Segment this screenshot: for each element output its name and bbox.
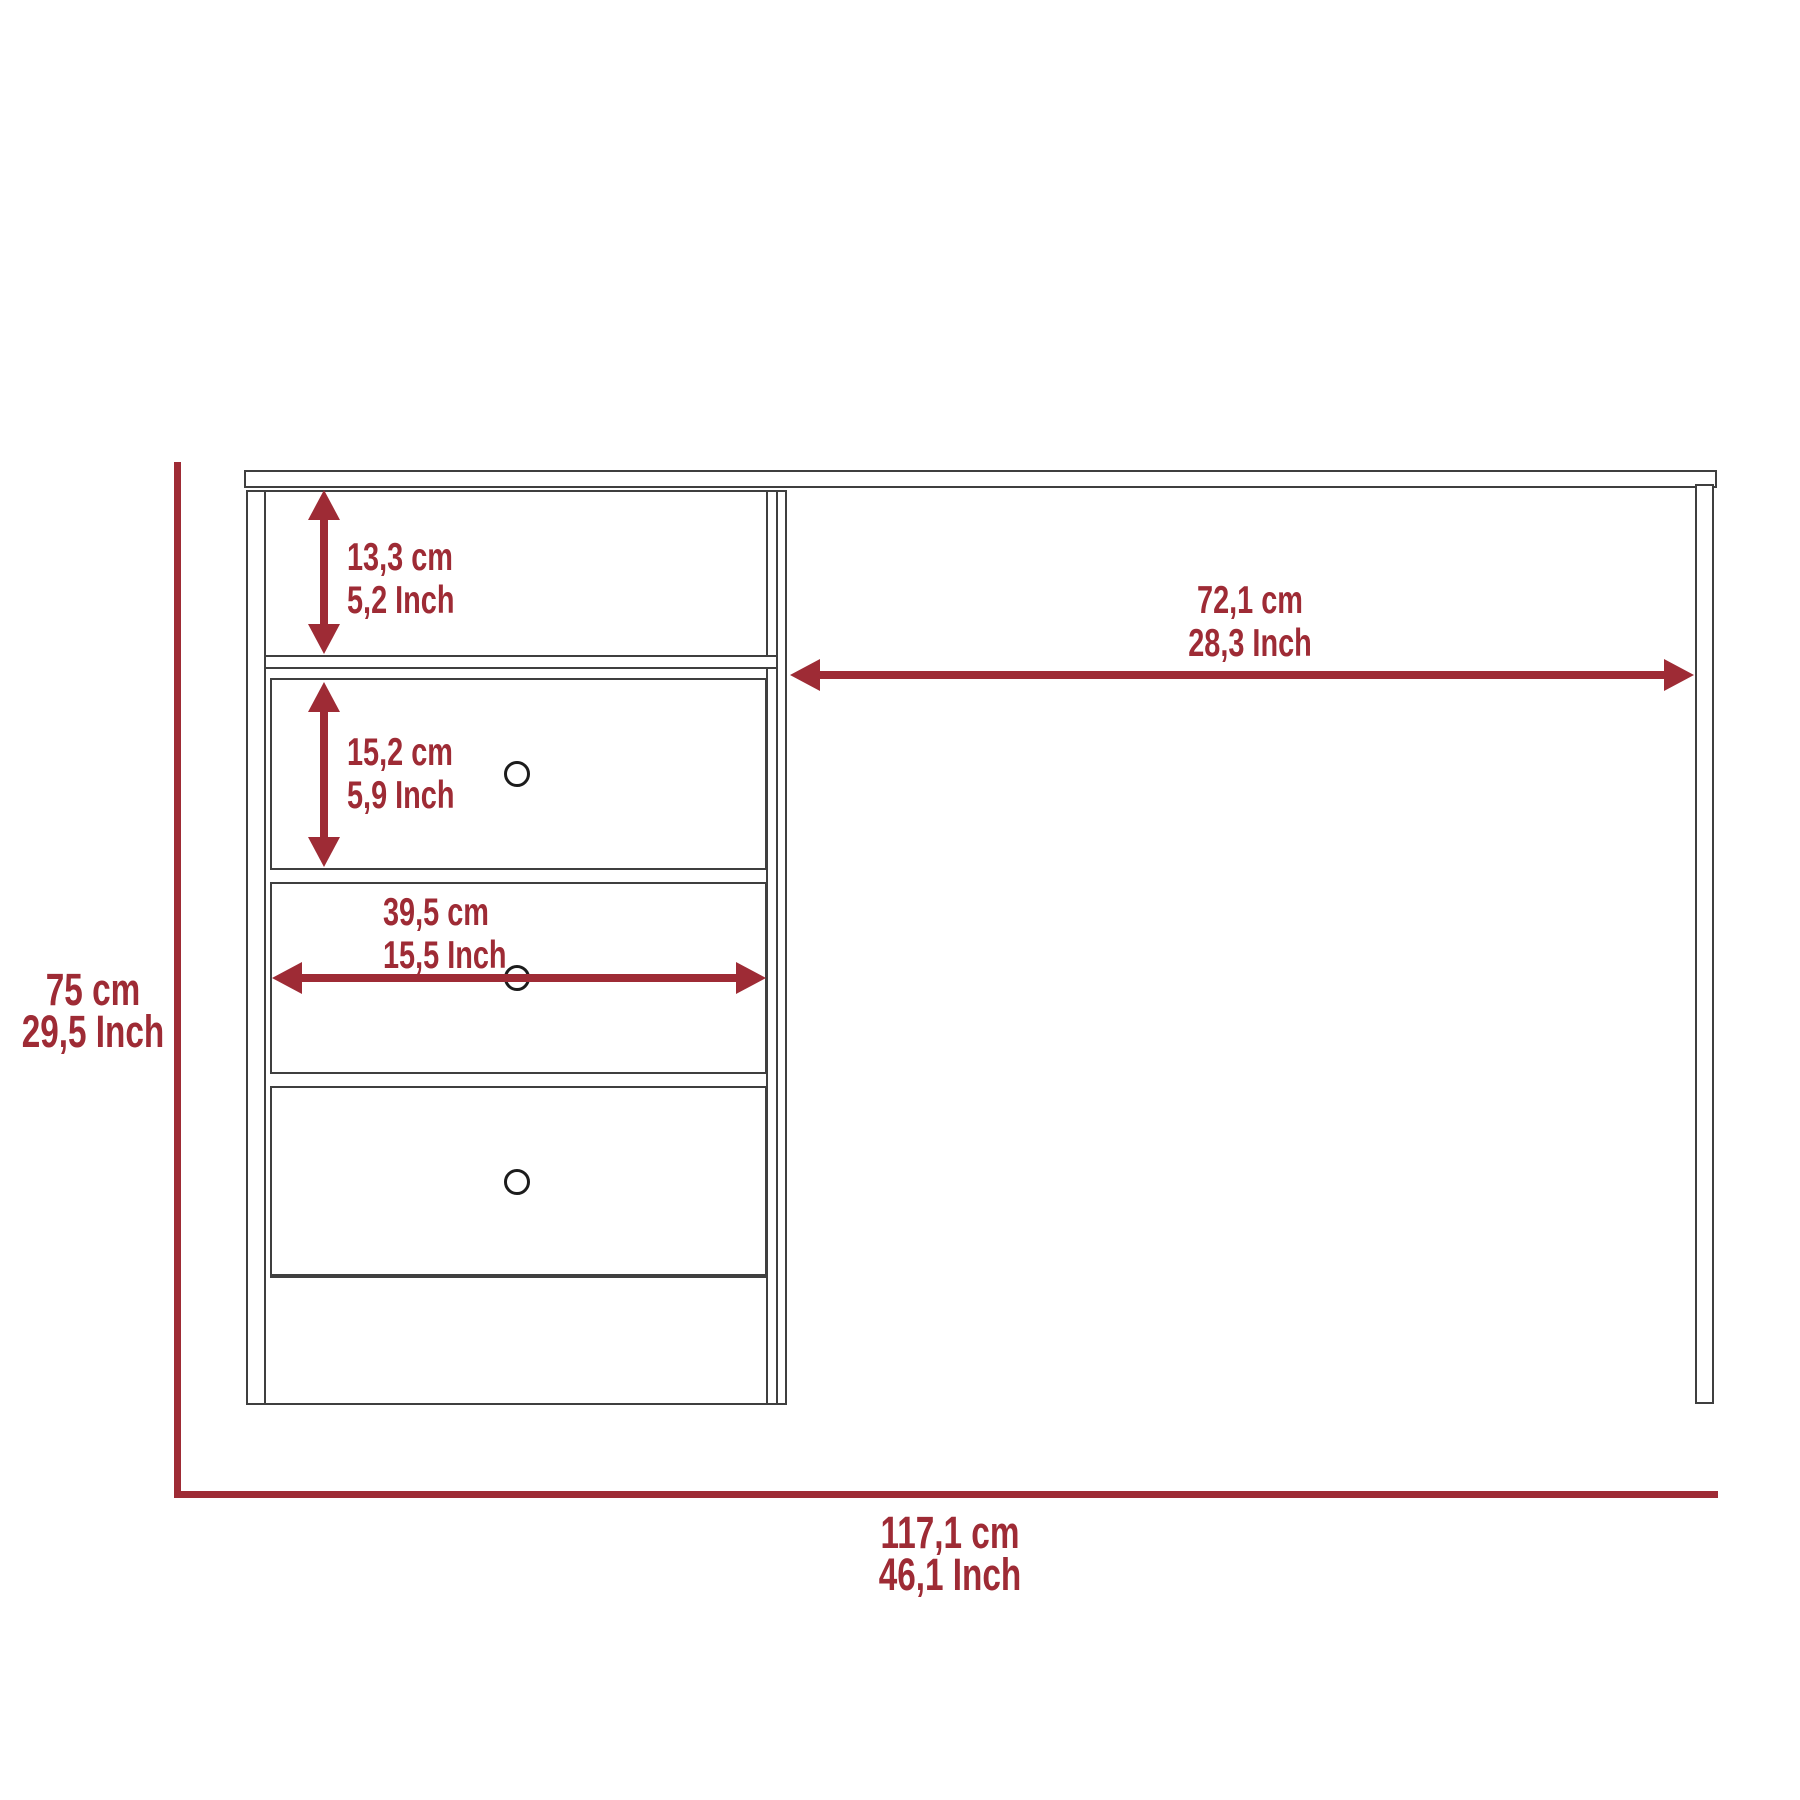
- drawer-3-knob: [504, 1169, 530, 1195]
- label-knee-space-width: 72,1 cm 28,3 Inch: [1102, 579, 1398, 665]
- drawer-1-knob: [504, 761, 530, 787]
- arrow-right-icon: [1664, 659, 1694, 691]
- arrow-down-icon: [308, 624, 340, 654]
- label-shelf-height: 13,3 cm 5,2 Inch: [347, 536, 454, 622]
- label-overall-width: 117,1 cm 46,1 Inch: [802, 1512, 1098, 1596]
- axis-horizontal-line: [174, 1491, 1718, 1498]
- label-overall-width-inch: 46,1 Inch: [802, 1554, 1098, 1596]
- pedestal-right-panel-line: [776, 490, 778, 1404]
- dim-arrow-drawer-width: [272, 962, 766, 994]
- label-shelf-height-cm: 13,3 cm: [347, 536, 454, 579]
- arrow-down-icon: [308, 837, 340, 867]
- label-overall-width-cm: 117,1 cm: [802, 1512, 1098, 1554]
- label-drawer-width: 39,5 cm 15,5 Inch: [383, 891, 507, 977]
- label-overall-height: 75 cm 29,5 Inch: [0, 969, 241, 1053]
- label-drawer-width-cm: 39,5 cm: [383, 891, 507, 934]
- label-overall-height-cm: 75 cm: [0, 969, 241, 1011]
- label-shelf-height-inch: 5,2 Inch: [347, 579, 454, 622]
- label-overall-height-inch: 29,5 Inch: [0, 1011, 241, 1053]
- pedestal-left-panel-line: [264, 490, 266, 1404]
- label-knee-space-cm: 72,1 cm: [1102, 579, 1398, 622]
- desk-top: [244, 470, 1717, 488]
- label-drawer-height-inch: 5,9 Inch: [347, 774, 454, 817]
- dim-arrow-drawer-height: [308, 682, 340, 867]
- arrow-right-icon: [736, 962, 766, 994]
- dim-arrow-shelf-height: [308, 490, 340, 654]
- label-drawer-width-inch: 15,5 Inch: [383, 934, 507, 977]
- right-leg: [1695, 484, 1714, 1404]
- label-drawer-height: 15,2 cm 5,9 Inch: [347, 731, 454, 817]
- label-knee-space-inch: 28,3 Inch: [1102, 622, 1398, 665]
- shelf-divider: [266, 655, 776, 669]
- desk-dimension-diagram: 13,3 cm 5,2 Inch 15,2 cm 5,9 Inch 39,5 c…: [0, 0, 1800, 1800]
- label-drawer-height-cm: 15,2 cm: [347, 731, 454, 774]
